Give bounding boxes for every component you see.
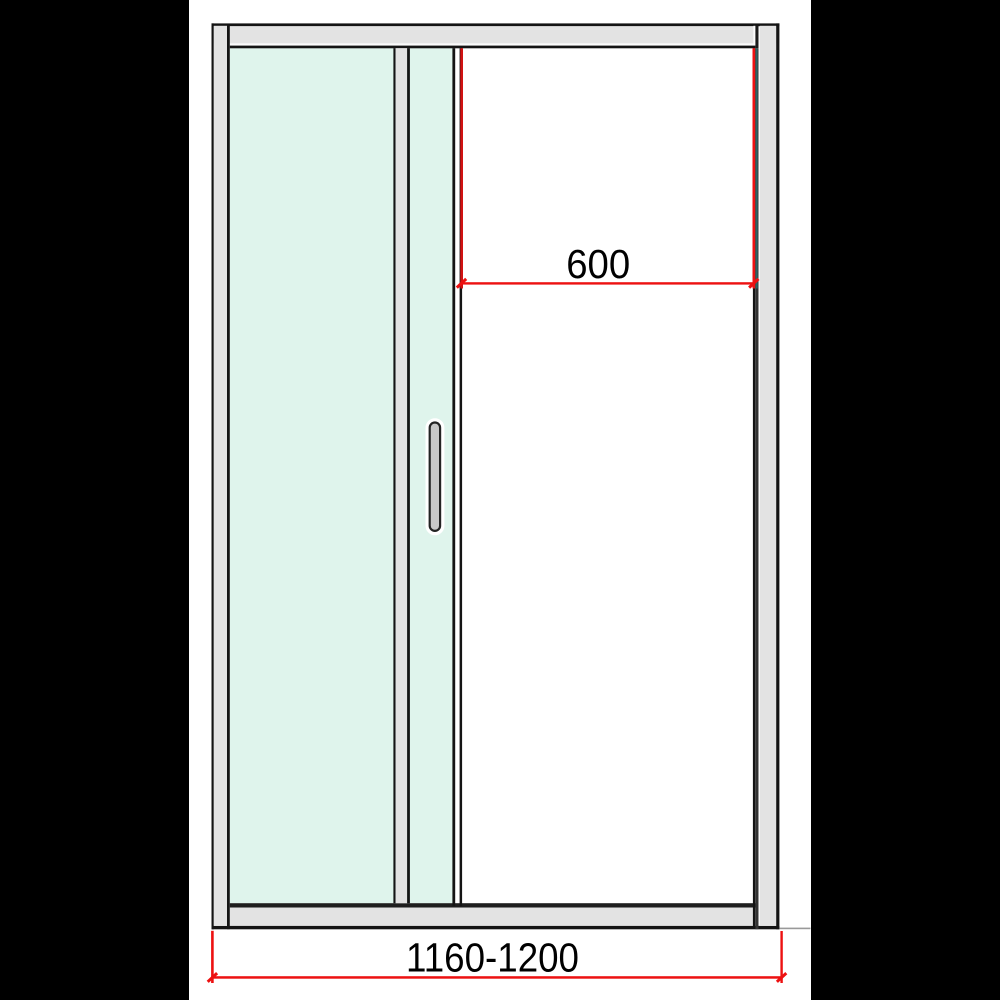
svg-text:600: 600 <box>566 241 630 287</box>
svg-text:1160-1200: 1160-1200 <box>406 935 579 981</box>
